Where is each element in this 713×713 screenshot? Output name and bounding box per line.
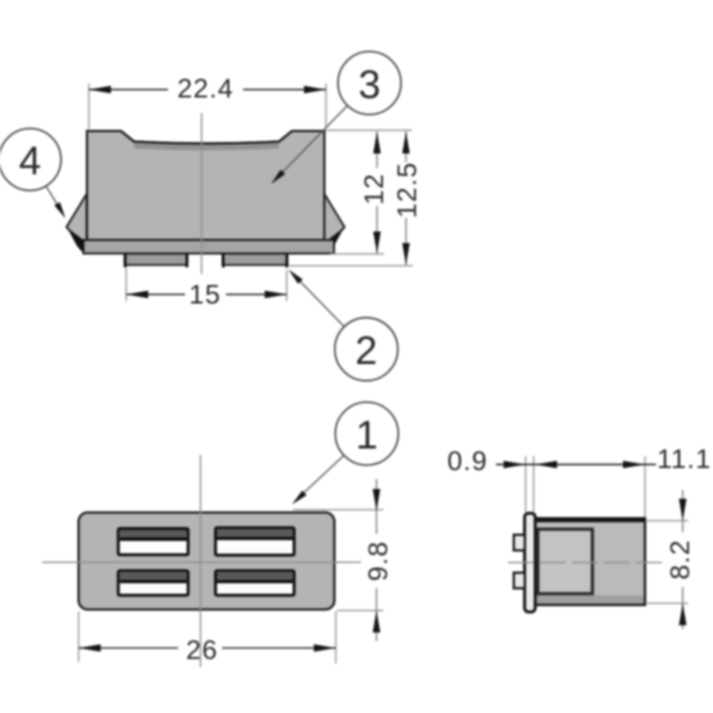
svg-text:15: 15 [189,280,221,310]
svg-text:9.8: 9.8 [363,541,393,582]
svg-text:3: 3 [358,63,380,107]
svg-text:11.1: 11.1 [657,444,712,474]
svg-text:26: 26 [186,635,218,665]
svg-text:12: 12 [359,173,389,205]
svg-text:22.4: 22.4 [177,74,234,104]
svg-text:0.9: 0.9 [447,446,488,476]
svg-text:12.5: 12.5 [392,162,422,219]
svg-text:8.2: 8.2 [665,539,695,580]
svg-text:4: 4 [19,139,41,183]
svg-text:1: 1 [356,414,378,458]
svg-text:2: 2 [355,329,377,373]
